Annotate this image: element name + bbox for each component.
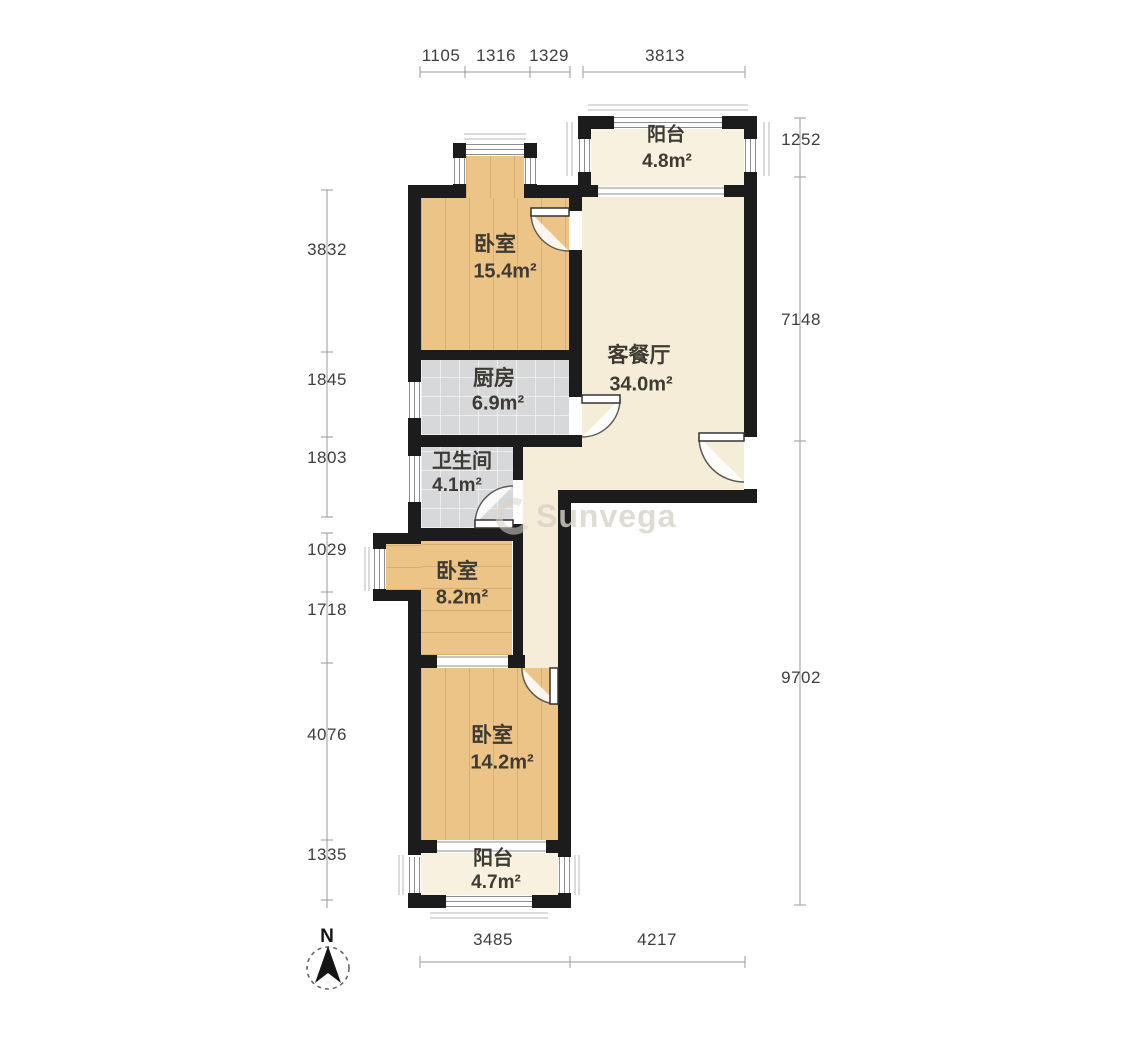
room-area-bedroom-south: 14.2m² <box>470 752 533 775</box>
dim-bottom-2: 4217 <box>637 930 677 950</box>
door-arc-entrance <box>699 437 744 482</box>
dim-right-3: 9702 <box>781 668 821 688</box>
door-arc-kitchen <box>582 399 620 437</box>
room-area-living-dining: 34.0m² <box>609 374 672 397</box>
room-name-living-dining: 客餐厅 <box>608 339 671 369</box>
dim-left-5: 1718 <box>307 600 347 620</box>
dim-left-2: 1845 <box>307 370 347 390</box>
north-label: N <box>320 926 334 948</box>
north-compass-icon <box>307 946 349 989</box>
door-leaf-entrance <box>699 433 744 441</box>
room-name-balcony-top: 阳台 <box>647 120 685 147</box>
door-arc-bedroom-north <box>531 213 569 251</box>
door-leaf-bedroom-north <box>531 208 569 216</box>
room-name-bedroom-middle: 卧室 <box>436 555 478 585</box>
dim-top-2: 1316 <box>476 46 516 66</box>
floor-plan-page: Sunvega 阳台 4.8m² 卧室 15.4m² 客餐厅 34.0m² 厨房… <box>0 0 1125 1064</box>
dim-left-6: 4076 <box>307 725 347 745</box>
dim-left-4: 1029 <box>307 540 347 560</box>
dim-left-3: 1803 <box>307 448 347 468</box>
dim-bottom-1: 3485 <box>473 930 513 950</box>
watermark-text: Sunvega <box>536 498 676 535</box>
room-name-bathroom: 卫生间 <box>432 445 492 474</box>
room-area-balcony-top: 4.8m² <box>642 151 692 173</box>
dim-right-1: 1252 <box>781 130 821 150</box>
room-area-bedroom-north: 15.4m² <box>473 261 536 284</box>
dim-top-4: 3813 <box>645 46 685 66</box>
dim-top-3: 1329 <box>529 46 569 66</box>
room-name-balcony-bottom: 阳台 <box>473 842 513 871</box>
room-area-bedroom-middle: 8.2m² <box>436 587 488 610</box>
room-area-kitchen: 6.9m² <box>472 393 524 416</box>
room-area-balcony-bottom: 4.7m² <box>471 872 521 894</box>
dim-left-7: 1335 <box>307 845 347 865</box>
room-name-kitchen: 厨房 <box>473 362 515 392</box>
room-name-bedroom-north: 卧室 <box>474 228 516 258</box>
dim-top-1: 1105 <box>422 46 461 66</box>
door-leaf-bedroom-south <box>550 668 558 704</box>
dim-left-1: 3832 <box>307 240 347 260</box>
dim-right-2: 7148 <box>781 310 821 330</box>
room-area-bathroom: 4.1m² <box>432 475 482 497</box>
room-name-bedroom-south: 卧室 <box>471 719 513 749</box>
